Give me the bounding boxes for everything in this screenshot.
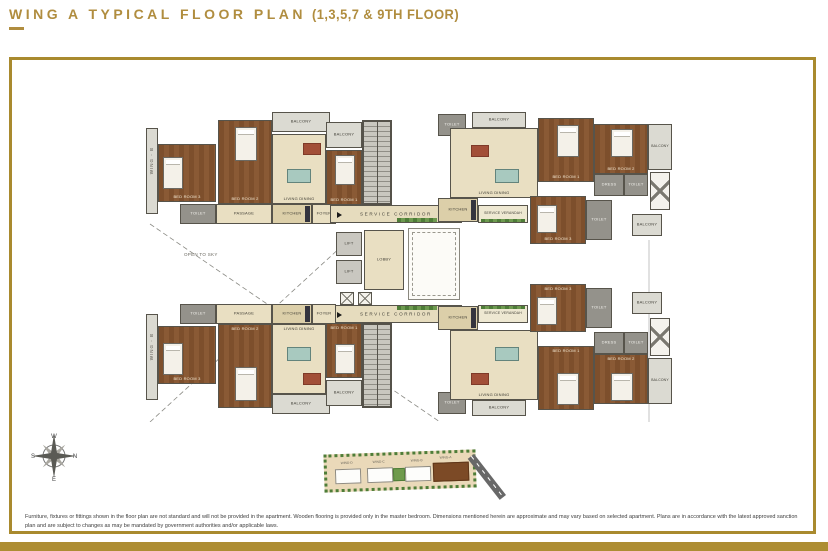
room-label: BED ROOM 3 [531, 287, 585, 292]
service-verandah-top: SERVICE VERANDAH [478, 205, 528, 223]
keyplan-wing-c [367, 467, 394, 483]
room-label: BED ROOM 2 [595, 357, 647, 362]
toilet-bottom-left: TOILET [180, 304, 216, 324]
lift-label: LIFT [337, 270, 361, 275]
room-label: LIVING DINING [273, 197, 325, 202]
room-label: BALCONY [473, 406, 525, 411]
floors-subtitle: (1,3,5,7 & 9TH FLOOR) [312, 6, 459, 22]
bedroom-2-bottom-right: BED ROOM 2 [594, 354, 648, 404]
room-label: PASSAGE [217, 212, 271, 217]
bed-icon [557, 125, 579, 157]
room-label: TOILET [181, 212, 215, 217]
duct-shaft-icon [358, 292, 372, 305]
disclaimer-text: Furniture, fixtures or fittings shown in… [25, 513, 803, 530]
planter-icon [397, 306, 437, 310]
page-title: WING A TYPICAL FLOOR PLAN(1,3,5,7 & 9TH … [9, 6, 472, 22]
door-arrow-icon [337, 212, 342, 218]
room-label: BALCONY [649, 379, 671, 383]
bed-icon [163, 157, 183, 189]
room-label: LIVING DINING [451, 191, 537, 196]
kitchen-bottom-right: KITCHEN [438, 306, 478, 330]
bedroom-3-bottom-right: BED ROOM 3 [530, 284, 586, 332]
keyplan-wing-b-label: WING-B [402, 458, 432, 463]
site-outline: WING-D WING-C WING-B WING-A [323, 449, 476, 492]
living-dining-bottom-left: LIVING DINING [272, 324, 326, 394]
lift-1: LIFT [336, 232, 362, 256]
dress-top-right: DRESS [594, 174, 624, 196]
staircase-bottom [362, 323, 392, 408]
balcony-bottom-right: BALCONY [472, 400, 526, 416]
bed-icon [163, 343, 183, 375]
room-label: TOILET [439, 123, 465, 128]
foyer-bottom-left: FOYER [312, 304, 336, 324]
room-label: TOILET [181, 312, 215, 317]
dining-table-icon [495, 347, 519, 361]
room-label: BALCONY [649, 145, 671, 149]
wing-title: WING A TYPICAL FLOOR PLAN [9, 6, 306, 22]
compass-e: E [52, 477, 56, 482]
room-label: SERVICE VERANDAH [479, 312, 527, 316]
keyplan-wing-a-label: WING-A [430, 455, 460, 460]
bed-icon [537, 205, 557, 233]
room-label: BED ROOM 3 [531, 237, 585, 242]
balcony-right-bottom: BALCONY [648, 358, 672, 404]
balcony-top-mid-left: BALCONY [326, 122, 362, 148]
bed-icon [611, 129, 633, 157]
kitchen-top-left: KITCHEN [272, 204, 312, 224]
keyplan-wing-c-label: WING-C [364, 459, 394, 464]
room-label: KITCHEN [439, 316, 477, 321]
door-arrow-icon [337, 312, 342, 318]
bedroom-1-bottom-right: BED ROOM 1 [538, 346, 594, 410]
kitchen-top-right: KITCHEN [438, 198, 478, 222]
compass-s: S [31, 454, 35, 460]
balcony-bottom-mid-left: BALCONY [326, 380, 362, 406]
rug-icon [303, 373, 321, 385]
keyplan-wing-d-label: WING-D [332, 460, 362, 465]
open-to-sky-label: OPEN TO SKY [184, 252, 218, 257]
room-label: TOILET [587, 218, 611, 223]
planter-icon [397, 218, 437, 222]
room-label: BALCONY [473, 118, 525, 123]
staircase-top [362, 120, 392, 205]
rug-icon [471, 145, 489, 157]
toilet-bottom-right-2: TOILET [624, 332, 648, 354]
room-label: BALCONY [633, 223, 661, 228]
keyplan-wing-d [335, 468, 362, 484]
floor-plan: OPEN TO SKY WING - B WING - B BED ROOM 3… [140, 106, 696, 422]
wing-b-label-top: WING - B [149, 147, 154, 174]
room-label: TOILET [625, 183, 647, 188]
keyplan-wing-b [405, 466, 432, 482]
dining-table-icon [495, 169, 519, 183]
bedroom-1-top-mid-left: BED ROOM 1 [326, 150, 362, 205]
room-label: BED ROOM 1 [327, 326, 361, 331]
balcony-top-left: BALCONY [272, 112, 330, 132]
shaft-icon [650, 318, 670, 356]
living-dining-top-right: LIVING DINING [450, 128, 538, 198]
bedroom-2-bottom-left: BED ROOM 2 [218, 324, 272, 408]
dress-bottom-right: DRESS [594, 332, 624, 354]
lift-lobby: LOBBY [364, 230, 404, 290]
room-label: BED ROOM 1 [327, 198, 361, 203]
compass-n: N [73, 454, 77, 460]
toilet-top-right-3: TOILET [586, 200, 612, 240]
bedroom-3-bottom-left: BED ROOM 3 [158, 326, 216, 384]
lift-label: LIFT [337, 242, 361, 247]
bedroom-3-top-left: BED ROOM 3 [158, 144, 216, 202]
room-label: BED ROOM 3 [159, 377, 215, 382]
room-label: BED ROOM 1 [539, 175, 593, 180]
planter-icon [481, 219, 525, 222]
bottom-gold-bar [0, 542, 828, 551]
bed-icon [235, 367, 257, 401]
room-label: FOYER [313, 312, 335, 317]
bed-icon [335, 344, 355, 374]
room-label: BED ROOM 2 [595, 167, 647, 172]
room-label: BED ROOM 2 [219, 327, 271, 332]
room-label: PASSAGE [217, 312, 271, 317]
room-label: BED ROOM 1 [539, 349, 593, 354]
bed-icon [235, 127, 257, 161]
bed-icon [611, 373, 633, 401]
dashed-outline [412, 232, 456, 296]
living-dining-top-left: LIVING DINING [272, 134, 326, 204]
balcony-top-right: BALCONY [472, 112, 526, 128]
lift-2: LIFT [336, 260, 362, 284]
room-label: BALCONY [633, 301, 661, 306]
keyplan-wing-a-highlight [433, 462, 470, 482]
bedroom-1-bottom-mid-left: BED ROOM 1 [326, 323, 362, 378]
planter-icon [481, 306, 525, 309]
room-label: TOILET [625, 341, 647, 346]
room-label: TOILET [439, 401, 465, 406]
room-label: BED ROOM 3 [159, 195, 215, 200]
floor-plan-page: WING A TYPICAL FLOOR PLAN(1,3,5,7 & 9TH … [0, 0, 828, 551]
dining-table-icon [287, 347, 311, 361]
edge-strip-bottom: WING - B [146, 314, 158, 400]
balcony-top-right-low: BALCONY [632, 214, 662, 236]
toilet-top-right-2: TOILET [624, 174, 648, 196]
bedroom-3-top-right: BED ROOM 3 [530, 196, 586, 244]
room-label: KITCHEN [273, 212, 311, 217]
room-label: BED ROOM 2 [219, 197, 271, 202]
shaft-icon [650, 172, 670, 210]
toilet-bottom-right-3: TOILET [586, 288, 612, 328]
room-label: LIVING DINING [273, 327, 325, 332]
room-label: BALCONY [273, 402, 329, 407]
service-verandah-bottom: SERVICE VERANDAH [478, 305, 528, 323]
bedroom-1-top-right: BED ROOM 1 [538, 118, 594, 182]
lobby-label: LOBBY [365, 258, 403, 263]
keyplan-green-icon [393, 468, 405, 481]
dining-table-icon [287, 169, 311, 183]
passage-bottom-left: PASSAGE [216, 304, 272, 324]
toilet-top-left: TOILET [180, 204, 216, 224]
title-underline [9, 27, 24, 30]
room-label: DRESS [595, 183, 623, 188]
refuge-area [408, 228, 460, 300]
room-label: KITCHEN [439, 208, 477, 213]
bedroom-2-top-right: BED ROOM 2 [594, 124, 648, 174]
bed-icon [537, 297, 557, 325]
balcony-bottom-left: BALCONY [272, 394, 330, 414]
passage-top-left: PASSAGE [216, 204, 272, 224]
rug-icon [471, 373, 489, 385]
bed-icon [335, 155, 355, 185]
duct-shaft-icon [340, 292, 354, 305]
room-label: SERVICE VERANDAH [479, 212, 527, 216]
room-label: LIVING DINING [451, 393, 537, 398]
balcony-bottom-right-low: BALCONY [632, 292, 662, 314]
room-label: KITCHEN [273, 312, 311, 317]
room-label: BALCONY [327, 391, 361, 396]
room-label: BALCONY [327, 133, 361, 138]
bedroom-2-top-left: BED ROOM 2 [218, 120, 272, 204]
kitchen-bottom-left: KITCHEN [272, 304, 312, 324]
key-plan: WING-D WING-C WING-B WING-A [316, 436, 502, 516]
room-label: TOILET [587, 306, 611, 311]
rug-icon [303, 143, 321, 155]
bed-icon [557, 373, 579, 405]
edge-strip-top: WING - B [146, 128, 158, 214]
balcony-right-top: BALCONY [648, 124, 672, 170]
compass-rose-icon: W N E S [28, 430, 80, 482]
room-label: BALCONY [273, 120, 329, 125]
wing-b-label-bottom: WING - B [149, 333, 154, 360]
room-label: DRESS [595, 341, 623, 346]
compass-w: W [51, 434, 57, 440]
living-dining-bottom-right: LIVING DINING [450, 330, 538, 400]
